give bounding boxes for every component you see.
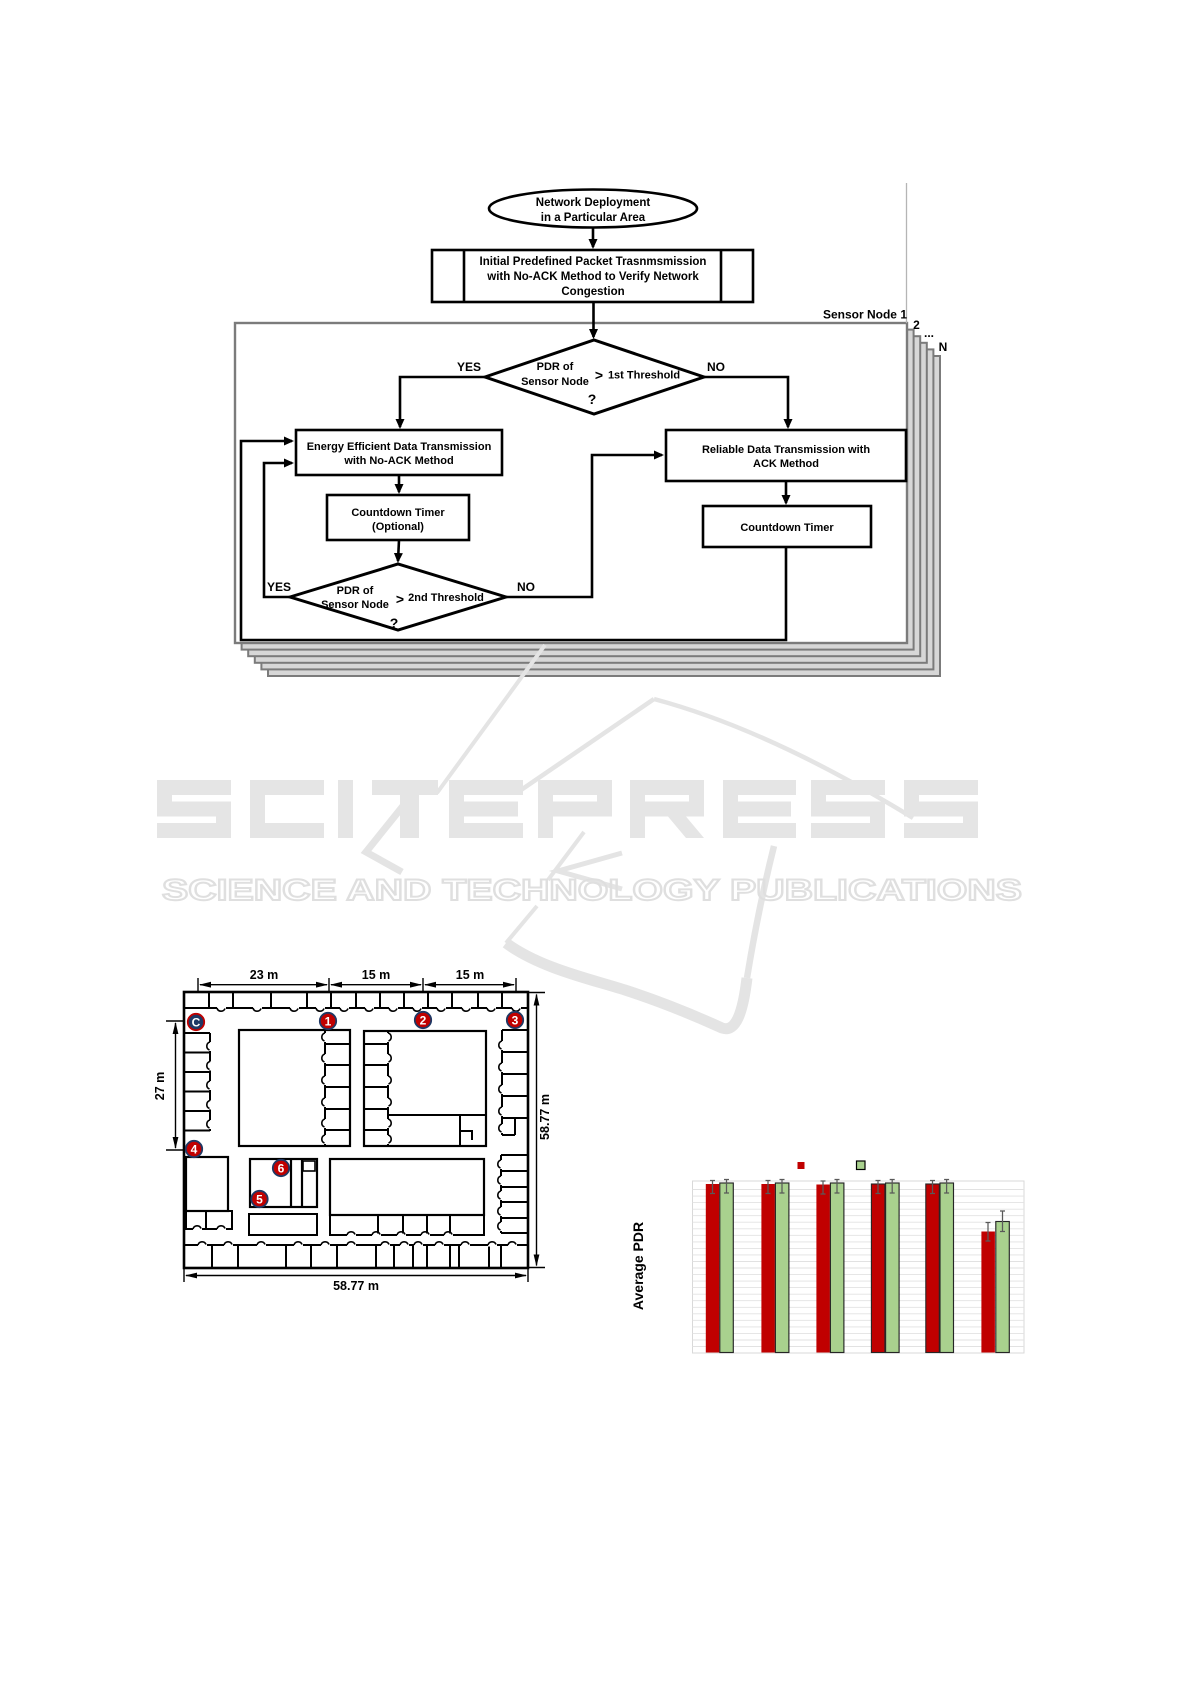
svg-text:(Optional): (Optional): [372, 521, 424, 533]
svg-text:...: ...: [924, 326, 934, 340]
svg-text:PDR of: PDR of: [537, 361, 574, 373]
svg-text:Reliable Data Transmission wit: Reliable Data Transmission with: [702, 444, 870, 456]
svg-text:Energy Efficient Data Transmis: Energy Efficient Data Transmission: [307, 441, 492, 453]
svg-text:2nd Threshold: 2nd Threshold: [408, 592, 484, 604]
svg-text:Sensor Node: Sensor Node: [321, 599, 389, 611]
svg-text:with No-ACK Method: with No-ACK Method: [343, 455, 453, 467]
svg-text:YES: YES: [457, 360, 481, 374]
svg-text:6: 6: [278, 1161, 285, 1175]
svg-text:PDR of: PDR of: [337, 585, 374, 597]
svg-text:>: >: [396, 591, 404, 607]
svg-text:Sensor Node 1: Sensor Node 1: [823, 308, 907, 322]
svg-text:1: 1: [325, 1014, 332, 1028]
svg-text:2: 2: [913, 318, 920, 332]
svg-text:23 m: 23 m: [250, 968, 279, 982]
svg-text:C: C: [192, 1015, 201, 1029]
svg-text:NO: NO: [707, 360, 725, 374]
svg-text:15 m: 15 m: [362, 968, 391, 982]
svg-text:1st Threshold: 1st Threshold: [608, 370, 680, 382]
svg-text:Countdown Timer: Countdown Timer: [351, 507, 445, 519]
svg-text:in a Particular Area: in a Particular Area: [541, 212, 646, 224]
svg-text:with No-ACK Method to Verify N: with No-ACK Method to Verify Network: [486, 271, 699, 283]
svg-text:2: 2: [420, 1013, 427, 1027]
svg-text:15 m: 15 m: [456, 968, 485, 982]
svg-text:NO: NO: [517, 580, 535, 594]
svg-text:Countdown Timer: Countdown Timer: [740, 522, 834, 534]
svg-text:5: 5: [256, 1192, 263, 1206]
svg-text:Sensor Node: Sensor Node: [521, 376, 589, 388]
svg-text:>: >: [595, 367, 603, 383]
svg-text:ACK Method: ACK Method: [753, 458, 819, 470]
svg-text:Network Deployment: Network Deployment: [536, 197, 651, 209]
svg-text:Initial Predefined Packet Tras: Initial Predefined Packet Trasnmsmission: [480, 256, 707, 268]
svg-text:58.77 m: 58.77 m: [538, 1094, 552, 1140]
svg-text:?: ?: [390, 615, 399, 631]
svg-text:4: 4: [191, 1142, 198, 1156]
svg-text:Average PDR: Average PDR: [630, 1222, 646, 1310]
svg-text:YES: YES: [267, 580, 291, 594]
svg-text:58.77 m: 58.77 m: [333, 1279, 379, 1293]
svg-text:3: 3: [512, 1013, 519, 1027]
svg-text:Congestion: Congestion: [561, 286, 624, 298]
svg-text:SCIENCE AND TECHNOLOGY PUBLICA: SCIENCE AND TECHNOLOGY PUBLICATIONS: [162, 874, 1022, 907]
svg-text:?: ?: [588, 391, 597, 407]
svg-text:27 m: 27 m: [153, 1072, 167, 1101]
svg-text:N: N: [939, 340, 948, 354]
